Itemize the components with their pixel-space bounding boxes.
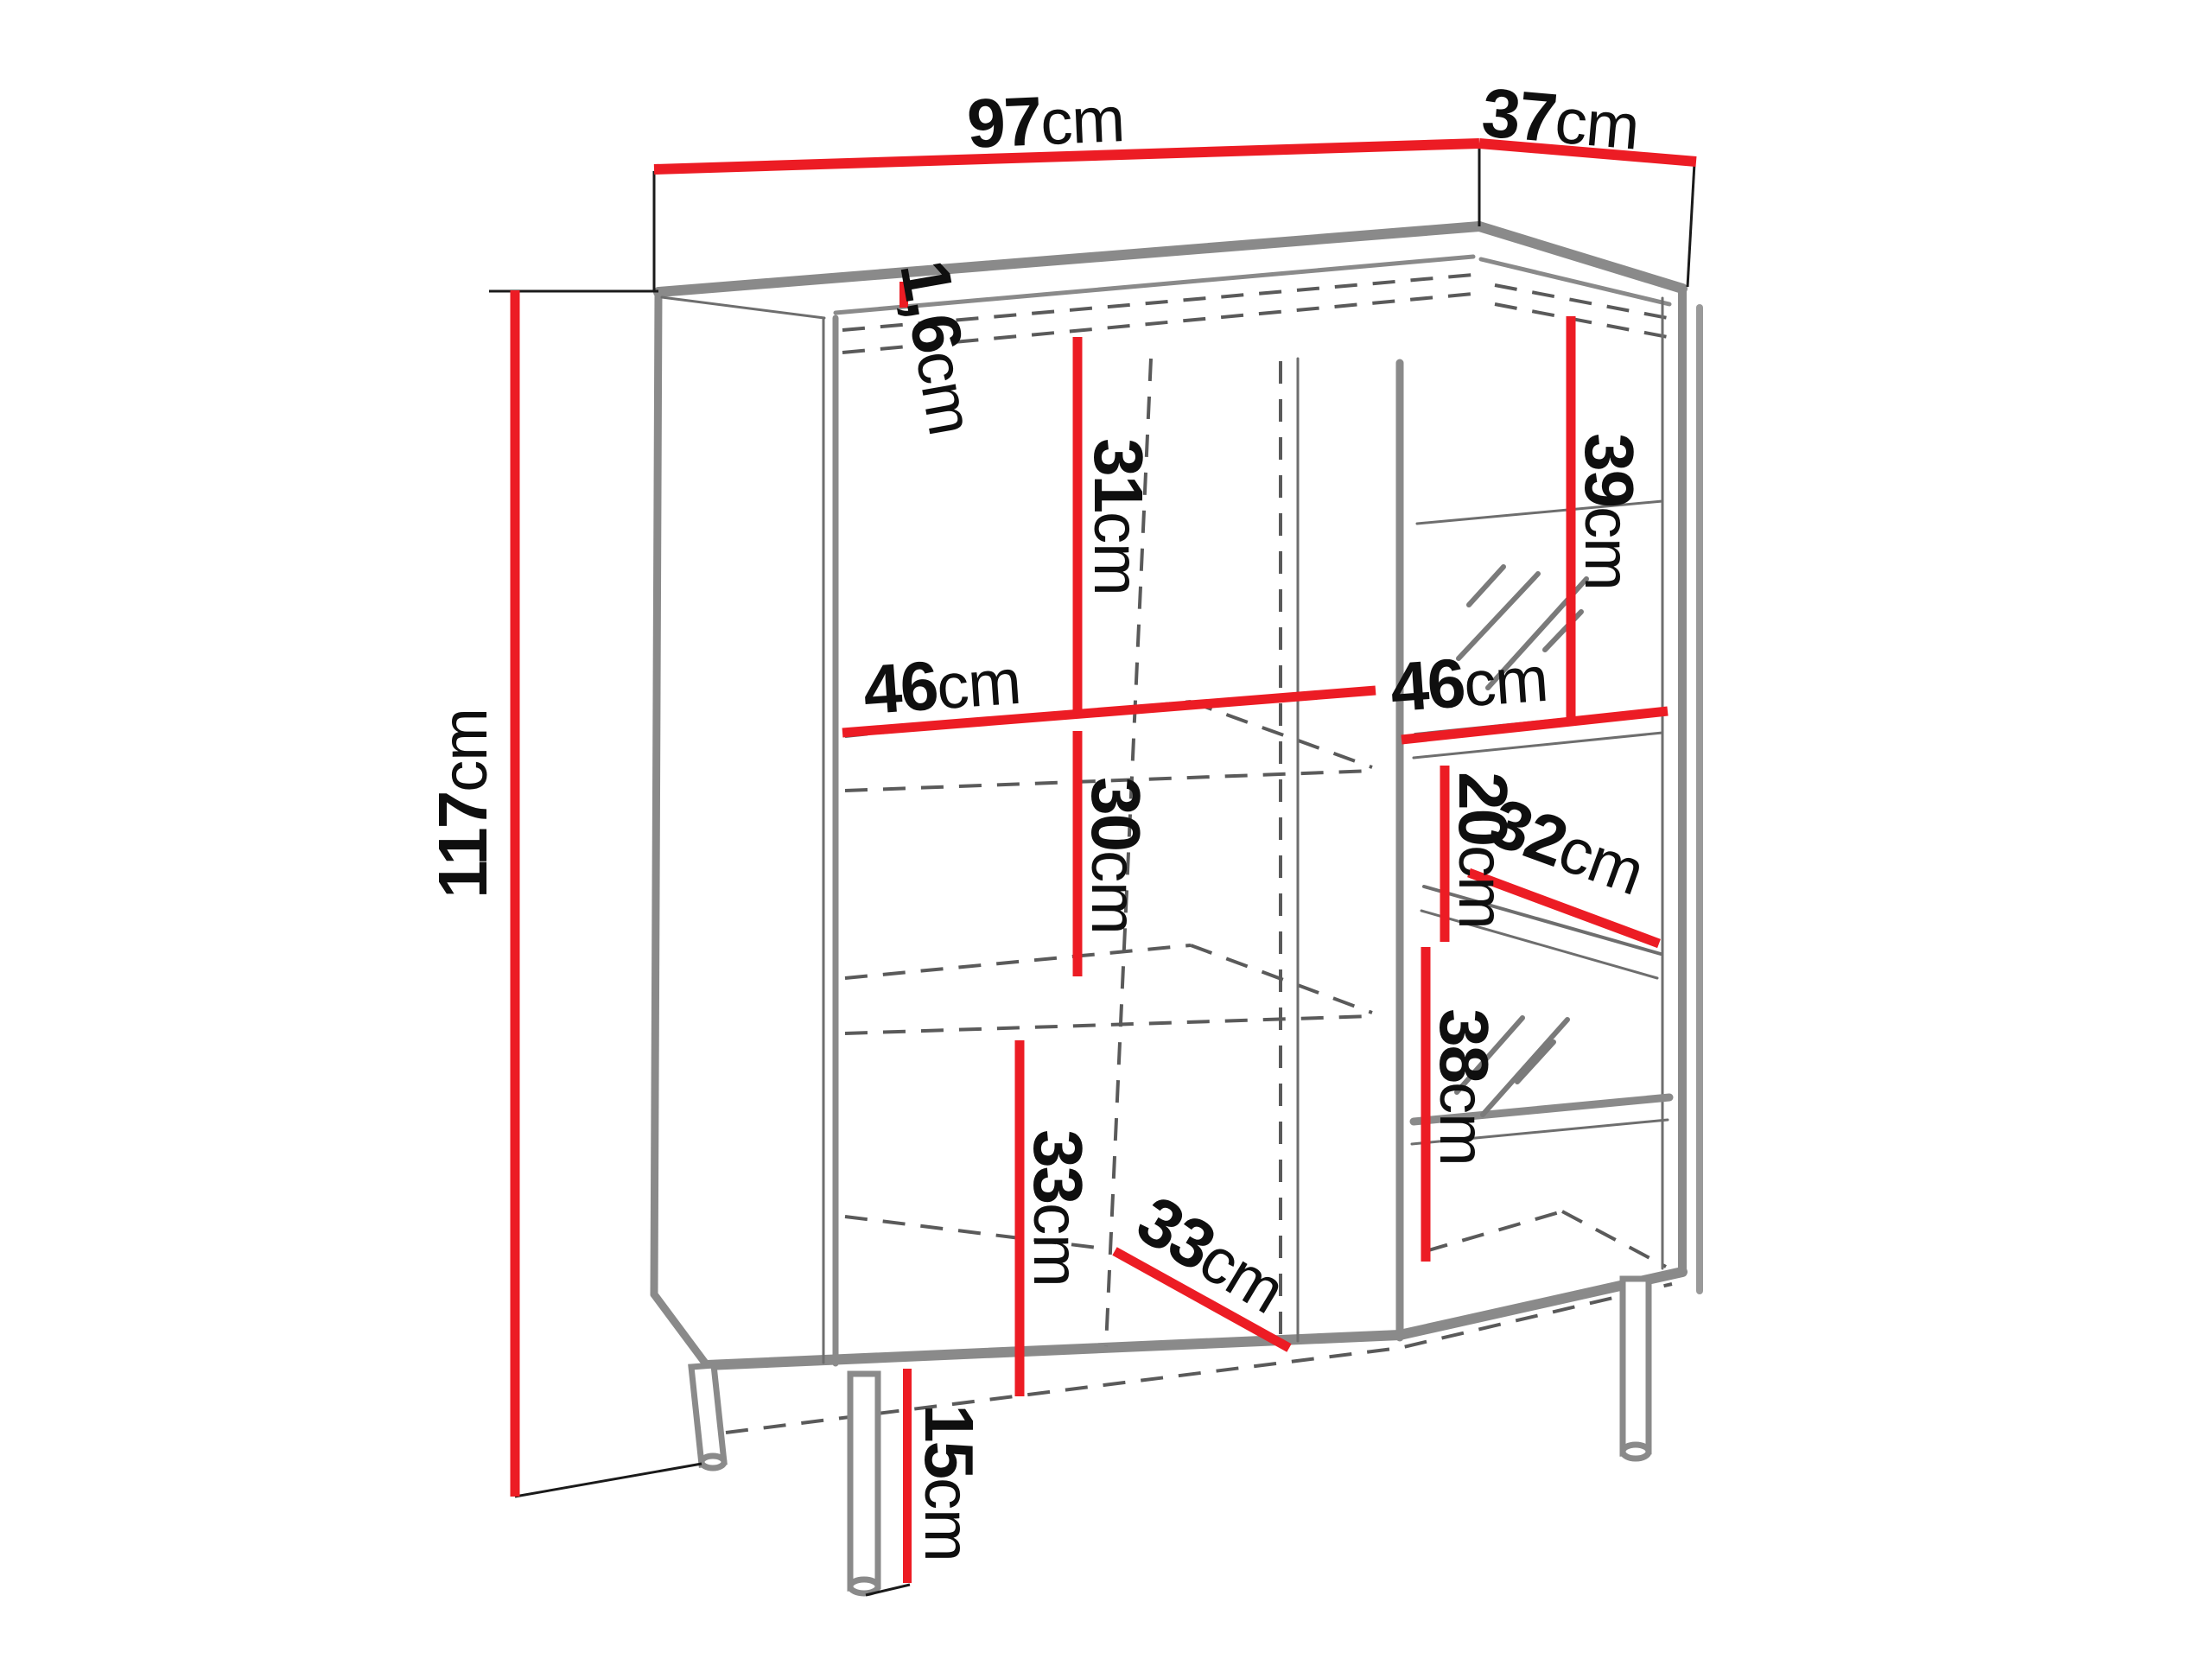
left-30-label: 30cm [1081,777,1150,934]
right-46-label: 46cm [1389,643,1550,722]
height-label: 117cm [429,709,498,899]
leg-front-right [1623,1279,1649,1459]
right-39-label: 39cm [1574,433,1643,590]
depth-label: 37cm [1479,78,1642,161]
dimension-diagram: 97cm 37cm 117cm 1,6cm 31cm 46cm 30cm 33c… [0,0,2212,1659]
left-46-label: 46cm [861,645,1023,725]
right-38-label: 38cm [1429,1008,1498,1166]
leg-front-left [850,1374,878,1593]
left-31-label: 31cm [1084,438,1153,595]
leg-15-label: 15cm [914,1404,983,1561]
left-33-label: 33cm [1023,1129,1092,1287]
left-side-panel-lines [662,297,836,1363]
leg-back-left [691,1365,724,1468]
width-label: 97cm [966,83,1126,159]
